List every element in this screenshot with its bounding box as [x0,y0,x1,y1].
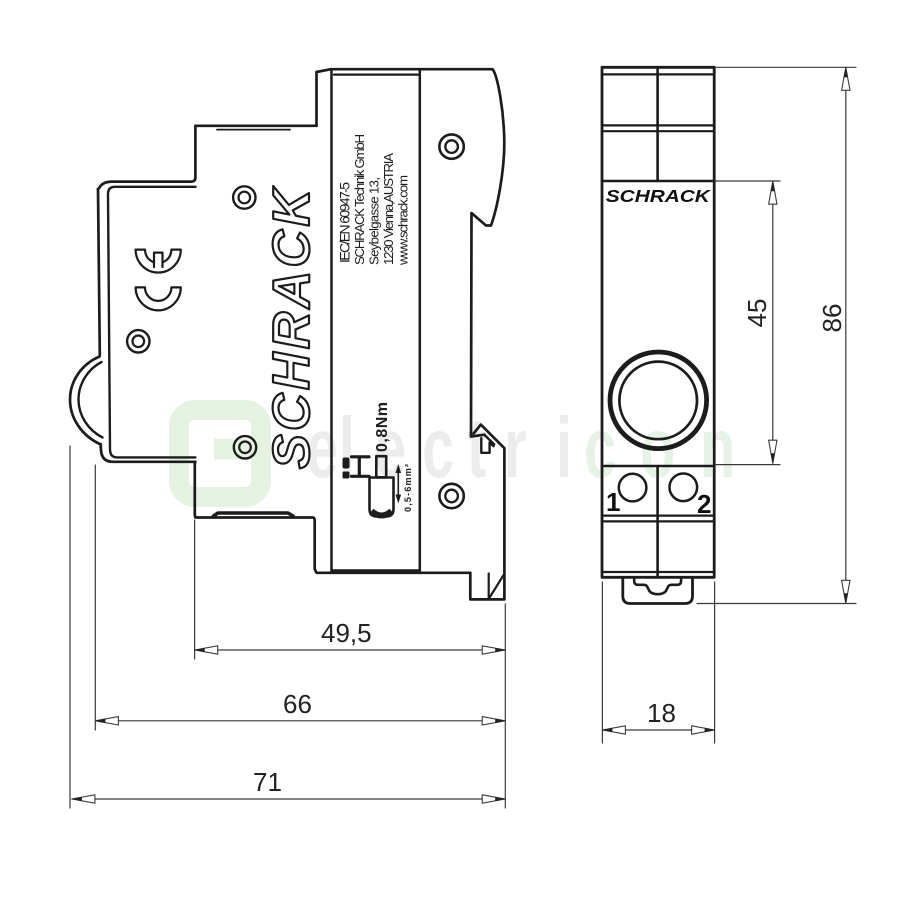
svg-text:66: 66 [283,689,312,719]
svg-text:1230 Vienna,AUSTRIA: 1230 Vienna,AUSTRIA [381,153,396,265]
svg-text:1: 1 [606,487,620,517]
svg-text:86: 86 [817,304,847,333]
svg-text:Seybelgasse 13,: Seybelgasse 13, [367,177,382,265]
svg-text:18: 18 [647,698,676,728]
svg-text:49,5: 49,5 [321,618,372,648]
svg-text:www.schrack.com: www.schrack.com [396,175,411,266]
svg-text:SCHRACK: SCHRACK [606,186,712,206]
svg-text:SCHRACK: SCHRACK [263,185,321,469]
svg-text:SCHRACK Technik GmbH: SCHRACK Technik GmbH [352,134,367,265]
svg-text:0,8Nm: 0,8Nm [374,402,391,452]
svg-text:45: 45 [742,299,772,328]
svg-text:IEC/EN 60947-5: IEC/EN 60947-5 [337,182,353,263]
svg-text:0,5-6mm²: 0,5-6mm² [403,464,413,512]
svg-text:71: 71 [253,767,282,797]
